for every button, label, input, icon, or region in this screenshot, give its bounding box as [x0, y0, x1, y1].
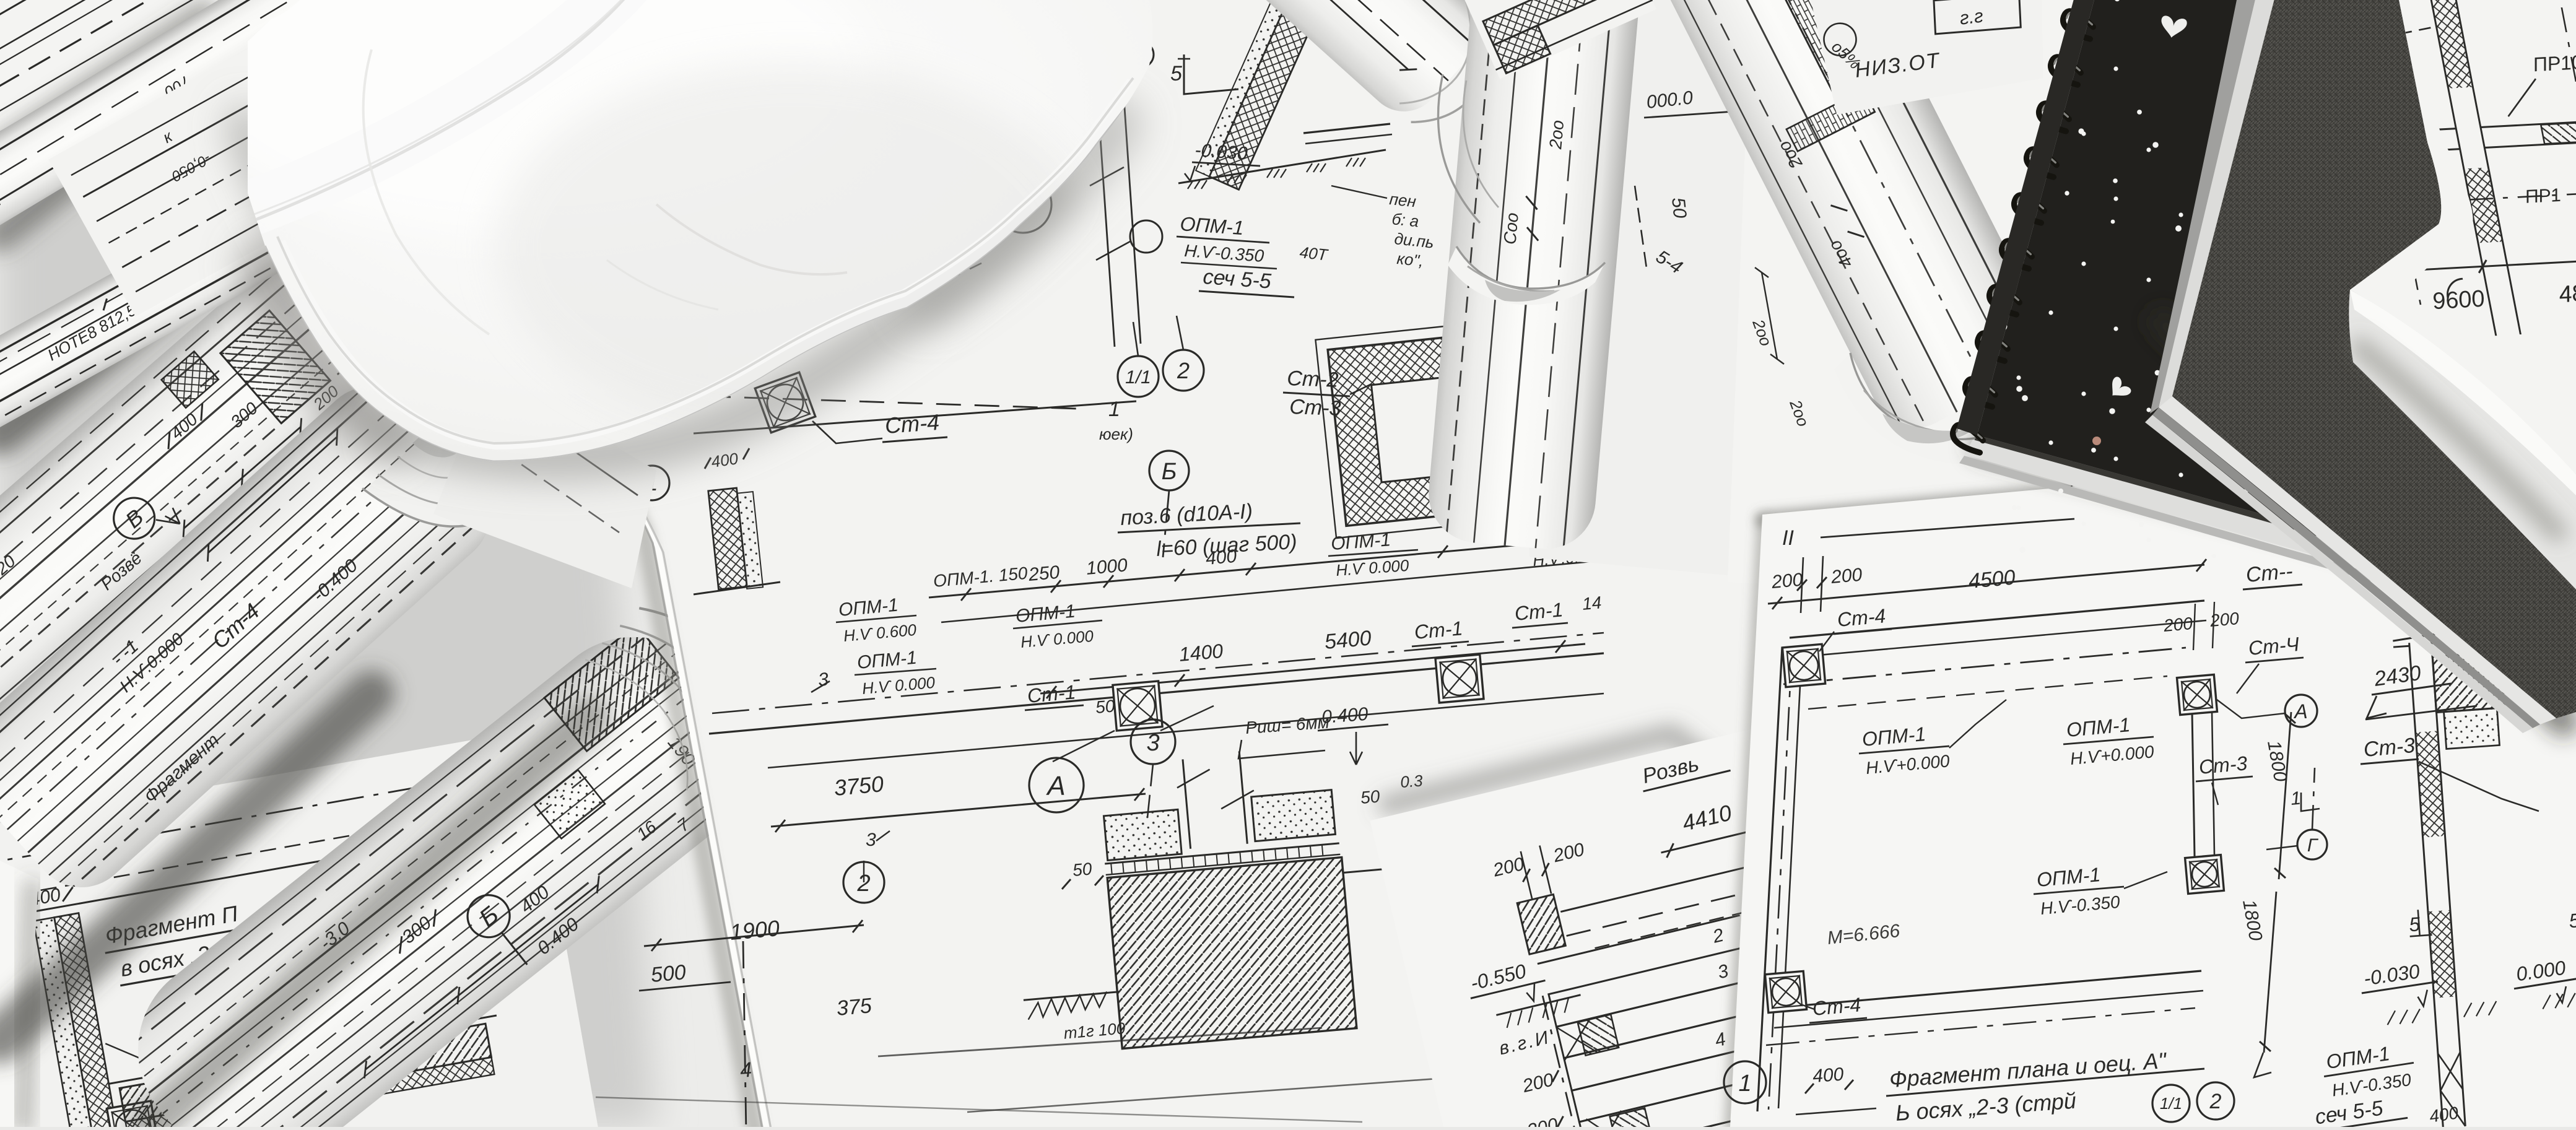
- svg-text:А: А: [2293, 700, 2307, 723]
- svg-text:сеч 5-5: сеч 5-5: [1202, 265, 1272, 293]
- svg-text:4500: 4500: [1967, 566, 2016, 593]
- svg-text:г.г: г.г: [1959, 6, 1985, 28]
- svg-text:Ст-4: Ст-4: [1836, 604, 1886, 631]
- svg-text:Ст-2: Ст-2: [1287, 367, 1339, 392]
- svg-text:Соо: Соо: [1500, 212, 1522, 245]
- svg-text:1: 1: [1108, 398, 1120, 421]
- svg-text:2оо: 2оо: [1546, 120, 1567, 150]
- svg-text:50: 50: [1095, 696, 1116, 717]
- svg-text:5: 5: [1170, 62, 1182, 85]
- svg-text:0.400: 0.400: [1321, 704, 1369, 728]
- svg-text:1/1: 1/1: [2160, 1094, 2182, 1113]
- svg-text:4: 4: [739, 1058, 753, 1082]
- svg-text:250: 250: [1027, 562, 1061, 585]
- svg-text:400: 400: [1205, 546, 1238, 569]
- svg-text:3750: 3750: [833, 771, 884, 801]
- svg-text:2: 2: [2209, 1090, 2222, 1113]
- svg-text:ПР1: ПР1: [2523, 185, 2563, 207]
- svg-text:50: 50: [1668, 196, 1690, 219]
- svg-text:400: 400: [710, 449, 740, 471]
- svg-text:500: 500: [650, 960, 687, 987]
- svg-text:1000: 1000: [1086, 555, 1129, 579]
- svg-text:2: 2: [1177, 358, 1190, 383]
- svg-text:40Т: 40Т: [1299, 243, 1329, 264]
- svg-text:Ст--: Ст--: [2245, 560, 2294, 587]
- svg-text:А: А: [1045, 771, 1065, 801]
- svg-text:3: 3: [1146, 730, 1159, 756]
- svg-text:1: 1: [1738, 1071, 1751, 1097]
- svg-text:50: 50: [1360, 786, 1381, 807]
- svg-text:пен: пен: [1388, 189, 1417, 211]
- svg-text:5400: 5400: [1323, 627, 1372, 654]
- svg-text:Ст-3: Ст-3: [1289, 395, 1341, 420]
- svg-text:Ст-3: Ст-3: [2198, 752, 2248, 778]
- svg-text:400: 400: [2428, 1103, 2460, 1126]
- svg-text:Ст-4: Ст-4: [1811, 993, 1861, 1020]
- svg-text:б: а: б: а: [1391, 209, 1419, 230]
- svg-text:ко",: ко",: [1396, 249, 1424, 270]
- svg-text:50: 50: [1072, 859, 1093, 880]
- svg-text:Г: Г: [2307, 835, 2319, 856]
- svg-text:юек): юек): [1099, 425, 1133, 443]
- svg-text:II: II: [1782, 526, 1794, 550]
- svg-text:400: 400: [1812, 1064, 1845, 1087]
- svg-text:200: 200: [1830, 565, 1863, 588]
- svg-text:5: 5: [2568, 909, 2576, 932]
- svg-text:Ст-4: Ст-4: [884, 409, 941, 438]
- svg-text:1: 1: [2290, 788, 2302, 809]
- svg-text:3: 3: [866, 830, 876, 850]
- svg-text:Ст-1: Ст-1: [1413, 617, 1463, 643]
- svg-text:Ст-1: Ст-1: [1026, 680, 1076, 707]
- svg-text:1400: 1400: [1178, 640, 1224, 666]
- svg-text:ПР10: ПР10: [2531, 51, 2576, 76]
- svg-text:Ст-1: Ст-1: [1513, 598, 1564, 625]
- svg-text:Б: Б: [1162, 459, 1177, 485]
- svg-text:375: 375: [835, 994, 872, 1020]
- svg-text:1900: 1900: [729, 915, 780, 945]
- svg-text:Ст-3: Ст-3: [2362, 734, 2416, 762]
- svg-text:ОПМ-1: ОПМ-1: [1180, 212, 1245, 239]
- svg-text:1/1: 1/1: [1125, 367, 1151, 388]
- svg-text:9600: 9600: [2430, 285, 2487, 315]
- svg-text:14: 14: [1582, 593, 1603, 614]
- svg-text:ОПМ-1: ОПМ-1: [1330, 529, 1391, 554]
- svg-text:Ст-Ч: Ст-Ч: [2247, 633, 2300, 659]
